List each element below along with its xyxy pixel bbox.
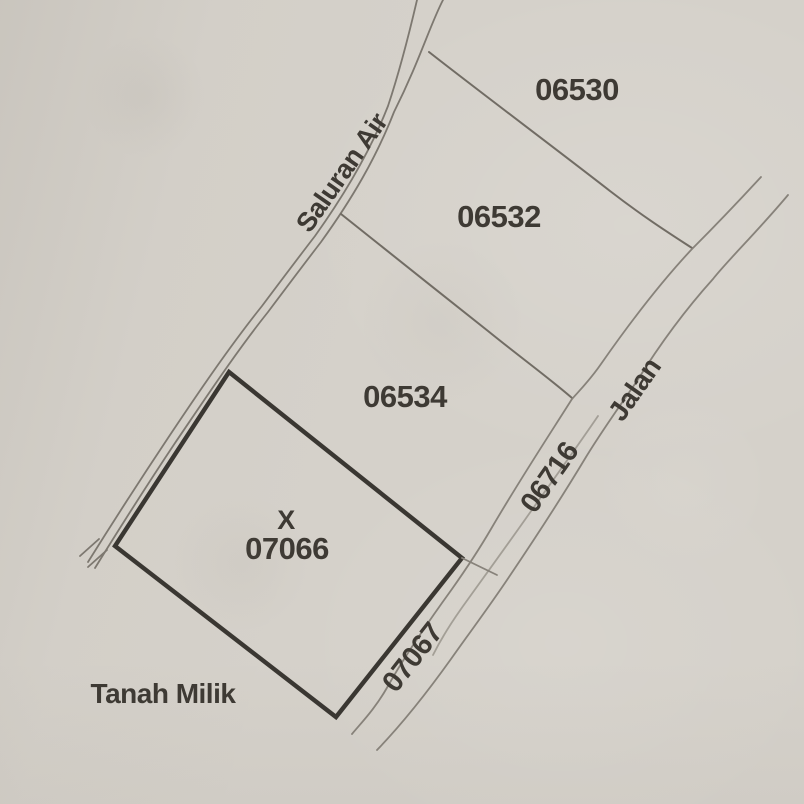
- cadastral-map-drawing: 06530 06532 06534 X 07066 06716 07067 Sa…: [0, 0, 804, 804]
- road-edge-right: [377, 195, 788, 750]
- parcel-label-07067: 07067: [376, 617, 449, 698]
- label-saluran-air: Saluran Air: [290, 107, 394, 238]
- label-tanah-milik: Tanah Milik: [91, 678, 237, 709]
- parcel-label-06534: 06534: [363, 379, 448, 414]
- parcel-label-06716: 06716: [514, 436, 585, 519]
- parcel-label-07066: 07066: [245, 531, 329, 566]
- label-jalan: Jalan: [602, 352, 667, 426]
- boundary-06532-06534: [341, 214, 572, 398]
- water-channel-line-right: [95, 0, 443, 568]
- parcel-label-06530: 06530: [535, 72, 619, 107]
- parcel-label-06532: 06532: [457, 199, 541, 234]
- water-channel-line-left: [88, 0, 417, 562]
- scanned-parcel-map: 06530 06532 06534 X 07066 06716 07067 Sa…: [0, 0, 804, 804]
